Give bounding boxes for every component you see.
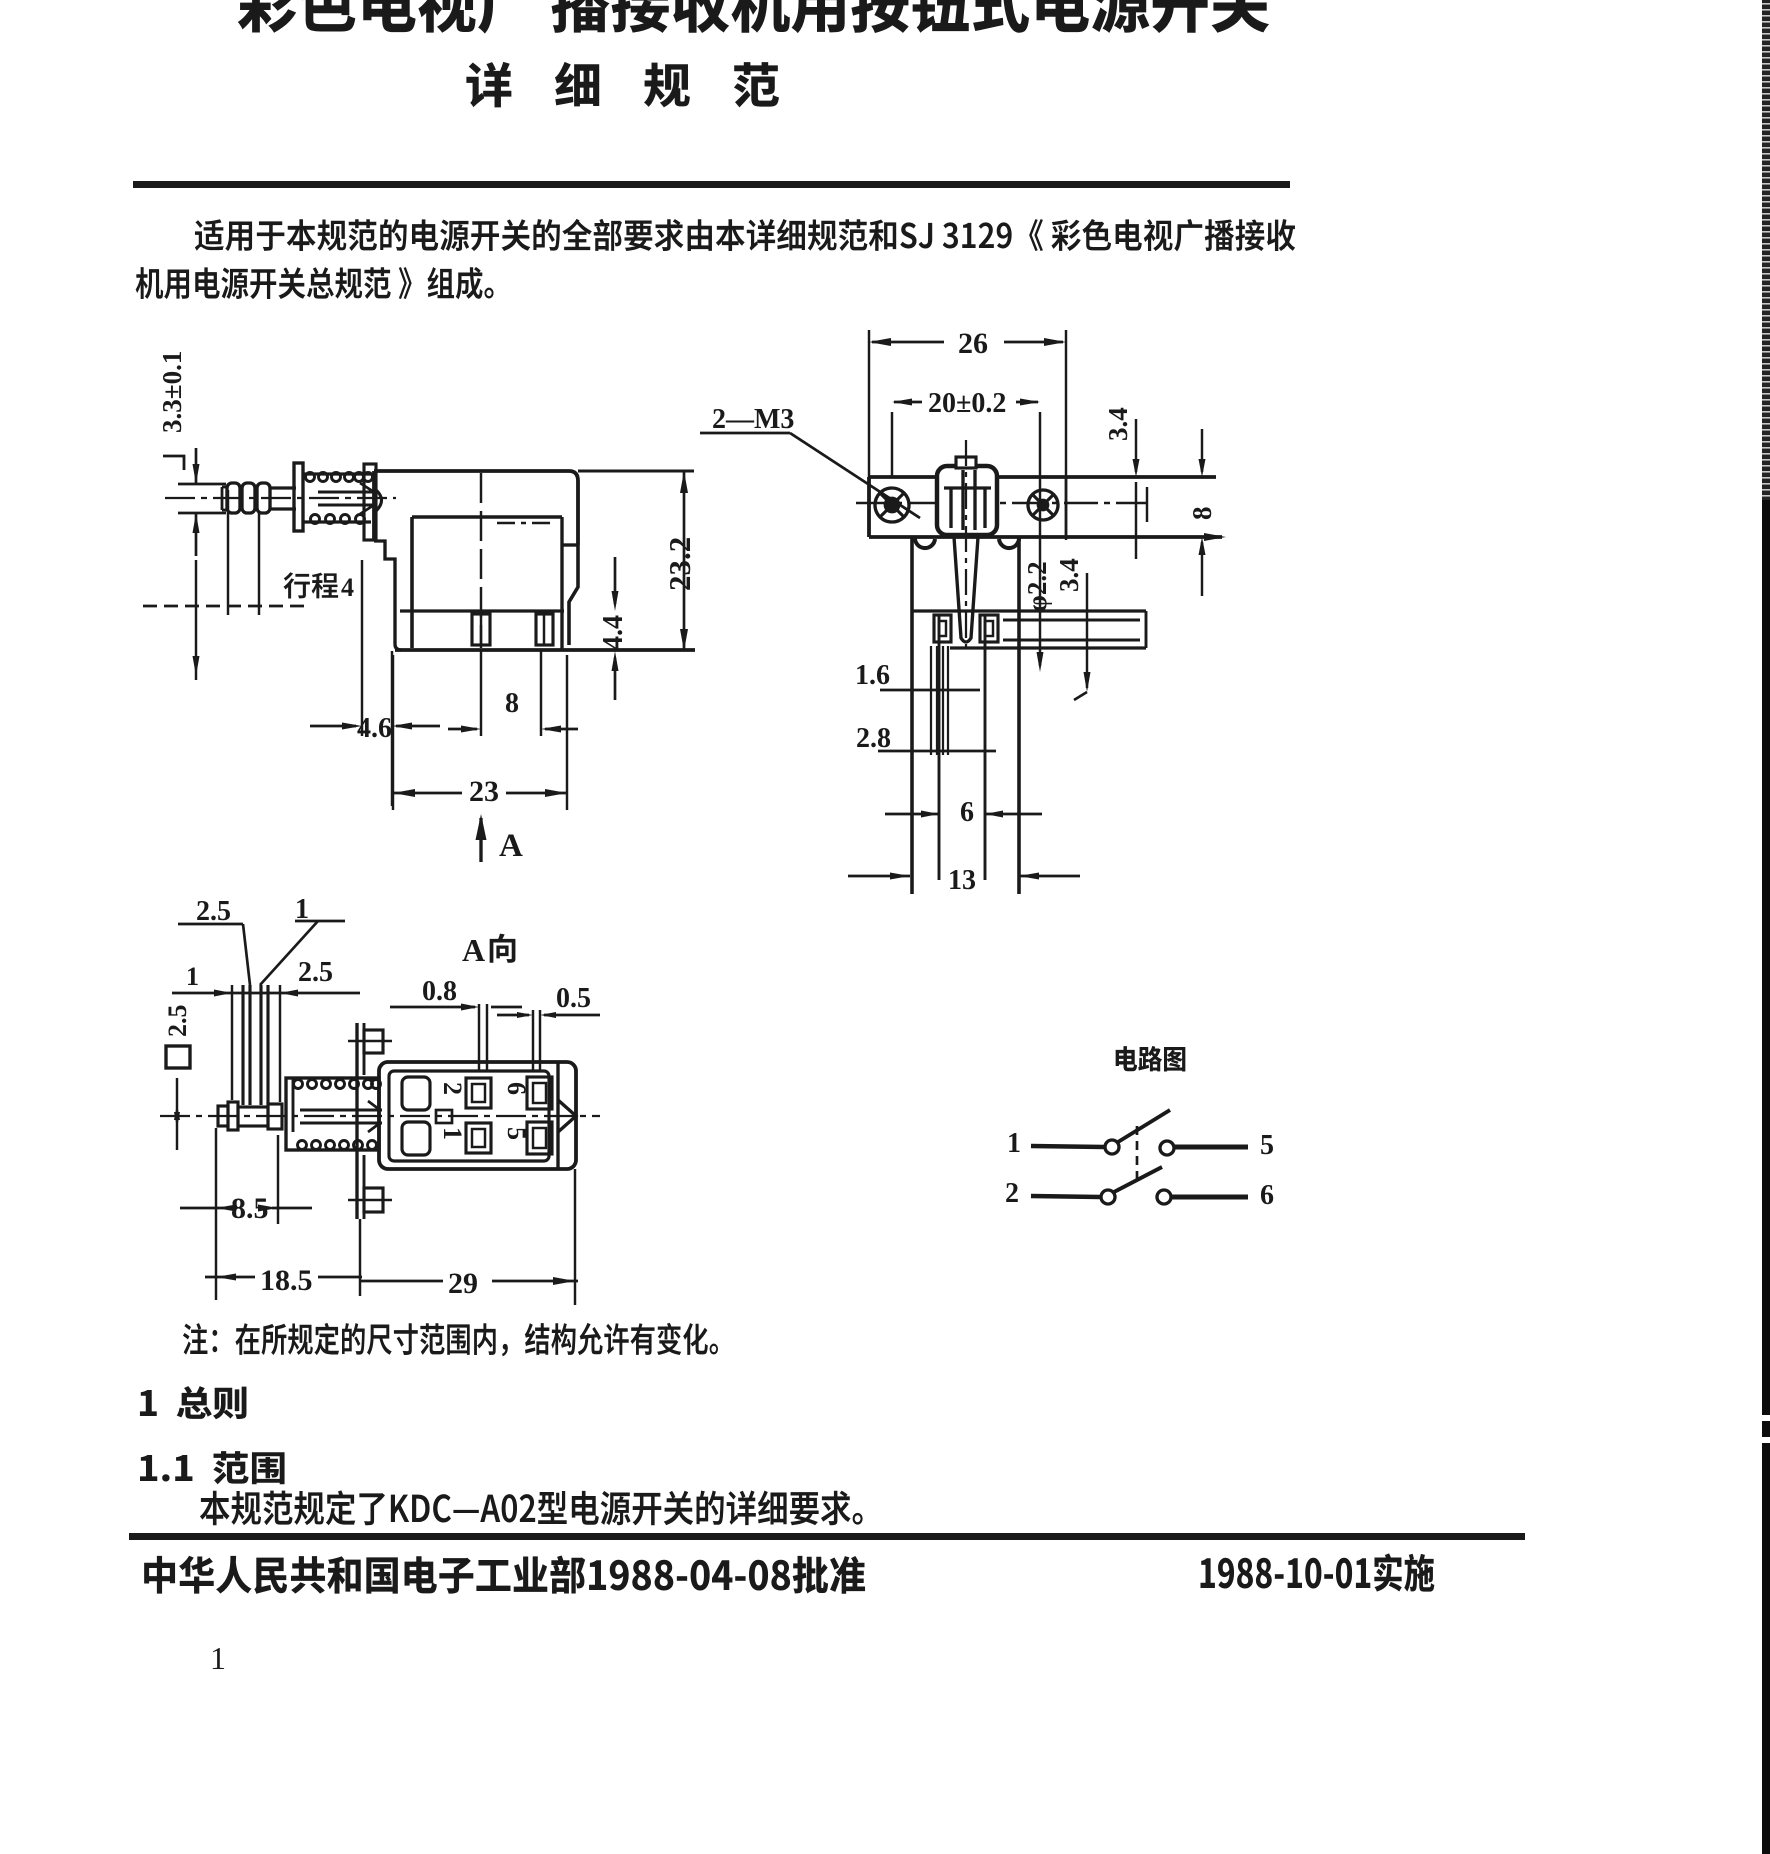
svg-text:23.2: 23.2 [662,537,697,591]
svg-text:1.6: 1.6 [855,660,890,691]
svg-text:1: 1 [1007,1128,1021,1159]
svg-text:1: 1 [210,1640,226,1676]
svg-text:2.5: 2.5 [196,896,231,927]
svg-text:2.5: 2.5 [163,1005,192,1038]
svg-text:3.4: 3.4 [1103,407,1133,441]
svg-text:1: 1 [186,962,199,991]
svg-text:6: 6 [1260,1180,1274,1211]
svg-text:4: 4 [341,573,354,602]
svg-text:4.6: 4.6 [357,713,392,744]
svg-text:1: 1 [438,1127,467,1140]
svg-text:20±0.2: 20±0.2 [928,388,1006,419]
svg-text:3.3±0.1: 3.3±0.1 [157,351,187,433]
svg-text:0.8: 0.8 [422,976,457,1007]
svg-text:2: 2 [1005,1178,1019,1209]
svg-text:29: 29 [448,1267,478,1300]
svg-text:23: 23 [469,775,499,808]
svg-text:2.8: 2.8 [856,723,891,754]
svg-text:8: 8 [505,688,519,719]
svg-text:2.5: 2.5 [298,957,333,988]
svg-text:A: A [462,932,485,968]
svg-text:4.4: 4.4 [598,615,629,650]
svg-text:8: 8 [1187,507,1217,521]
svg-text:5: 5 [1260,1130,1274,1161]
svg-text:φ2.2: φ2.2 [1022,561,1052,612]
svg-text:0.5: 0.5 [556,983,591,1014]
svg-text:13: 13 [948,865,976,896]
svg-text:2: 2 [438,1082,467,1095]
svg-text:2—M3: 2—M3 [712,404,794,435]
svg-text:A: A [499,828,523,864]
svg-text:6: 6 [960,797,974,828]
svg-text:3.4: 3.4 [1054,558,1084,592]
svg-text:18.5: 18.5 [260,1264,313,1297]
svg-text:26: 26 [958,327,988,360]
